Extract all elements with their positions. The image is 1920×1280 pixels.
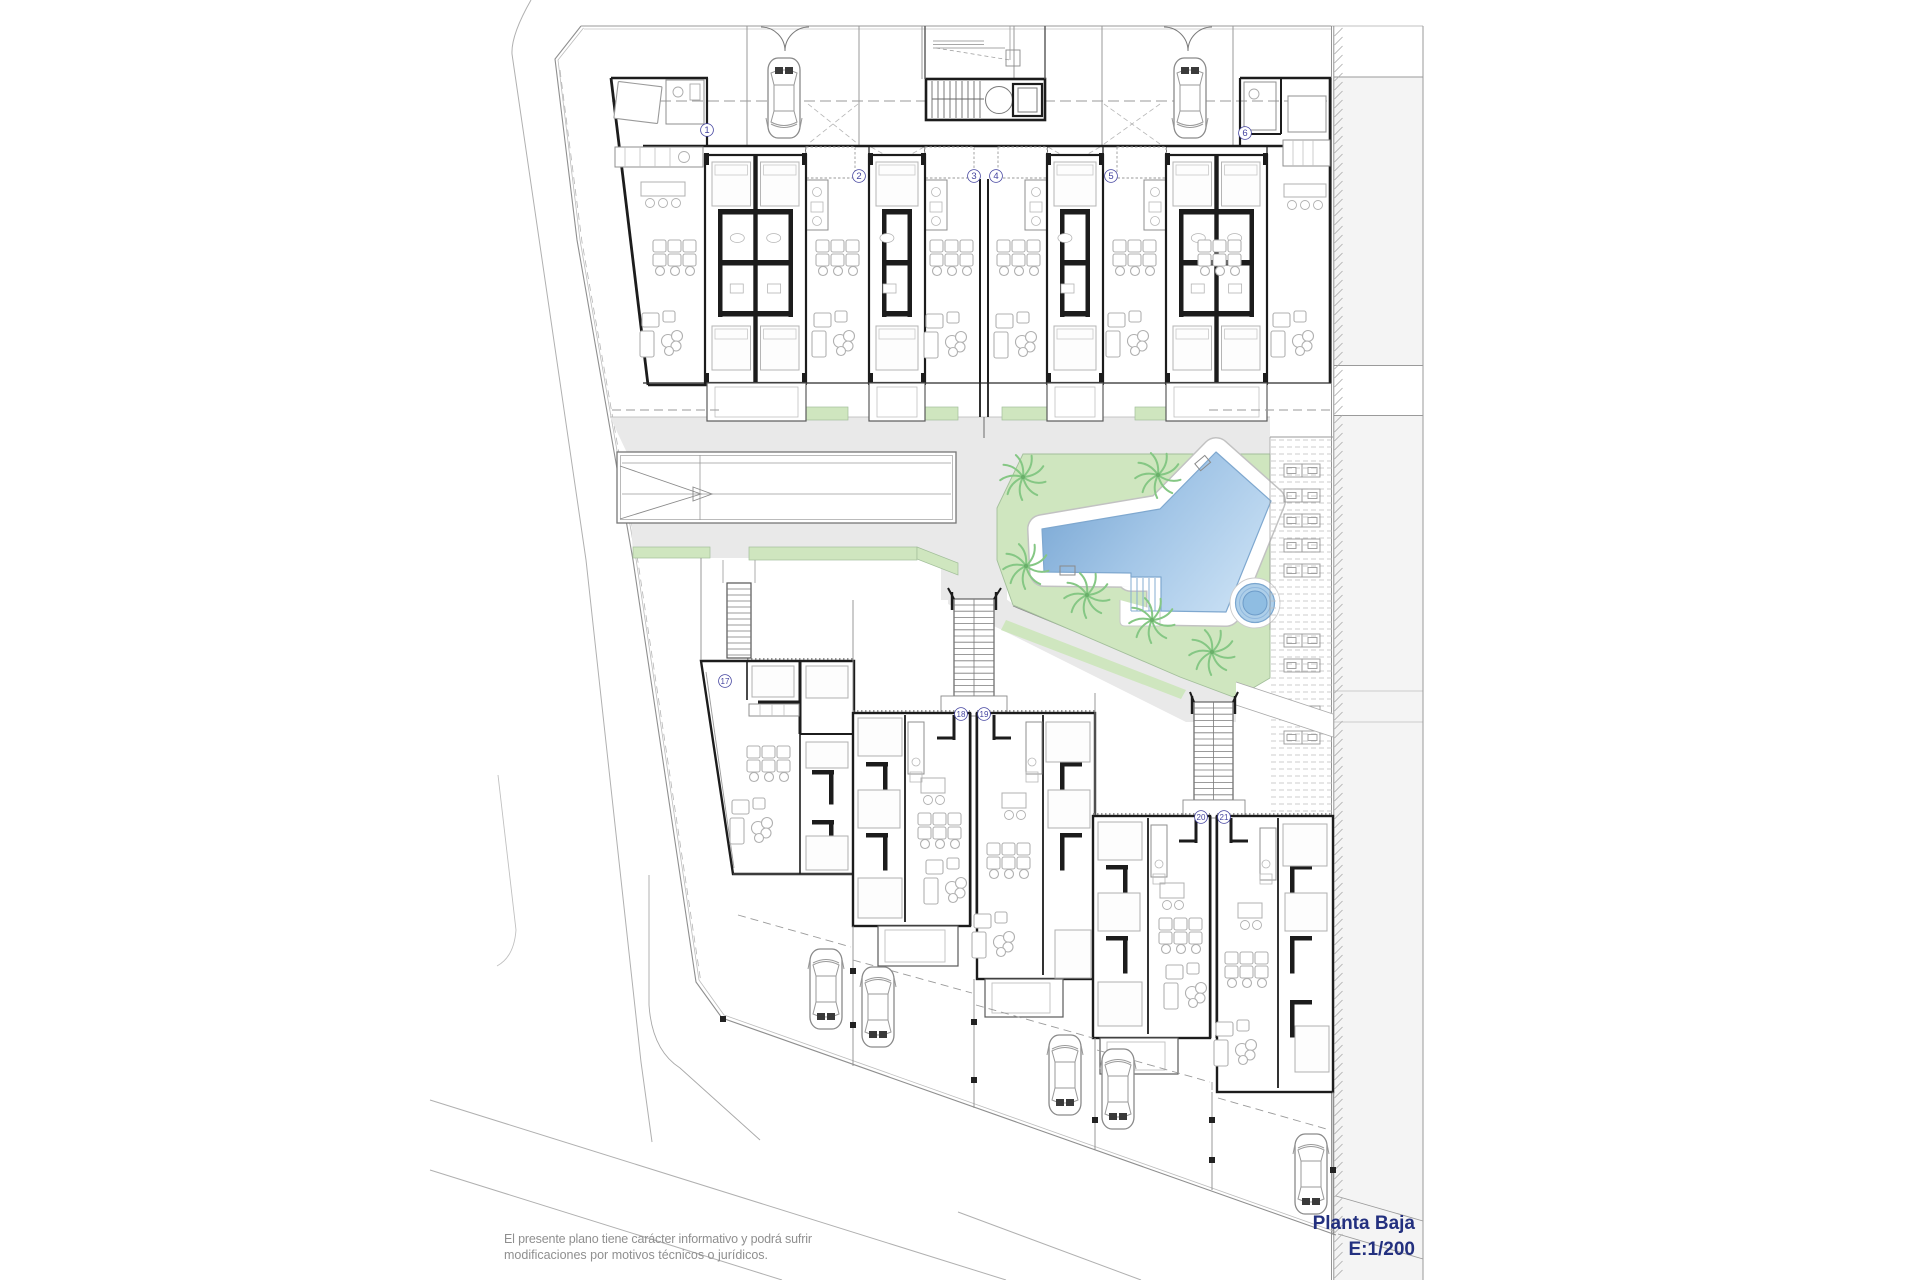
svg-text:Planta Baja: Planta Baja — [1313, 1213, 1416, 1234]
svg-text:El presente plano tiene caráct: El presente plano tiene carácter informa… — [504, 1232, 812, 1246]
svg-text:4: 4 — [993, 171, 998, 182]
svg-text:E:1/200: E:1/200 — [1348, 1239, 1415, 1260]
svg-text:19: 19 — [980, 710, 989, 719]
svg-text:17: 17 — [721, 677, 730, 686]
svg-text:modificaciones por motivos téc: modificaciones por motivos técnicos o ju… — [504, 1248, 768, 1262]
svg-text:2: 2 — [856, 171, 861, 182]
svg-text:18: 18 — [957, 710, 966, 719]
svg-text:3: 3 — [971, 171, 976, 182]
svg-text:5: 5 — [1108, 171, 1113, 182]
svg-text:21: 21 — [1220, 813, 1229, 822]
svg-text:1: 1 — [704, 125, 709, 136]
svg-text:6: 6 — [1242, 128, 1247, 139]
svg-text:20: 20 — [1197, 813, 1206, 822]
